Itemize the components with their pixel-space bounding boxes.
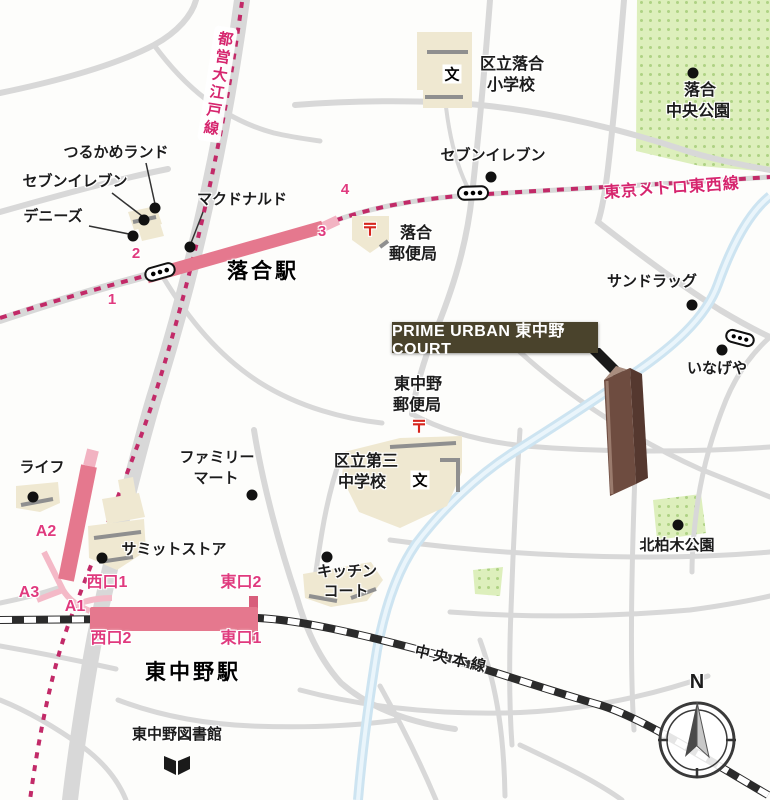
label-ochiai-chuo-park-2: 中央公園	[666, 104, 730, 121]
compass-north-label: N	[690, 672, 704, 693]
exit-east2: 東口2	[221, 575, 262, 592]
area-map: 都営大江戸線 東京メトロ東西線 中央本線 落合駅 東中野駅 つるかめランド セブ…	[0, 0, 770, 800]
label-seven-eleven-west: セブンイレブン	[22, 174, 127, 190]
property-label: PRIME URBAN 東中野 COURT	[392, 322, 598, 353]
oedo-bar-tip	[89, 450, 93, 466]
small-green-area	[473, 567, 503, 596]
label-mcdonalds: マクドナルド	[197, 192, 287, 208]
exit-east1: 東口1	[221, 631, 262, 648]
label-daisan-jhs-2: 中学校	[338, 475, 386, 492]
exit-a1: A1	[65, 599, 85, 616]
label-familymart-2: マート	[193, 471, 238, 487]
post-icon-higashinakano: 〒	[411, 413, 428, 438]
jr-station-bar	[90, 607, 258, 631]
exit-a2: A2	[36, 524, 56, 541]
label-kitakashiwagi-park: 北柏木公園	[639, 538, 714, 554]
compass	[658, 702, 736, 778]
label-kitchen-court-2: コート	[323, 584, 368, 600]
label-tsurukame-land: つるかめランド	[63, 145, 168, 161]
label-kitchen-court-1: キッチン	[317, 564, 377, 580]
exit-west2: 西口2	[91, 631, 132, 648]
label-ochiai-elementary-1: 区立落合	[480, 57, 544, 74]
label-inageya: いなげや	[687, 361, 747, 377]
label-daisan-jhs-1: 区立第三	[334, 454, 398, 471]
label-seven-eleven-north: セブンイレブン	[440, 148, 545, 164]
label-higashinakano-post-1: 東中野	[394, 377, 442, 394]
label-familymart-1: ファミリー	[179, 450, 254, 466]
exit-west1: 西口1	[87, 575, 128, 592]
ochiai-station-label: 落合駅	[227, 261, 299, 283]
label-sundrug: サンドラッグ	[607, 274, 697, 290]
school-icon: 文	[411, 471, 430, 490]
label-dennys: デニーズ	[23, 209, 82, 225]
higashi-nakano-station-label: 東中野駅	[145, 662, 241, 684]
exit-number-1: 1	[108, 292, 116, 308]
label-ochiai-elementary-2: 小学校	[487, 78, 535, 95]
post-icon-ochiai: 〒	[362, 216, 379, 241]
school-icon: 文	[443, 65, 462, 84]
label-ochiai-post-2: 郵便局	[389, 247, 437, 264]
exit-number-2: 2	[132, 246, 140, 262]
label-ochiai-chuo-park-1: 落合	[684, 83, 716, 100]
exit-number-4: 4	[341, 182, 349, 198]
label-higashinakano-library: 東中野図書館	[132, 727, 222, 743]
exit-a3: A3	[19, 585, 39, 602]
label-life: ライフ	[19, 460, 64, 476]
exit-number-3: 3	[318, 224, 326, 240]
label-summit-store: サミットストア	[121, 542, 226, 558]
map-canvas	[0, 0, 770, 800]
station-marker-tozai	[458, 186, 488, 200]
label-ochiai-post-1: 落合	[400, 226, 432, 243]
